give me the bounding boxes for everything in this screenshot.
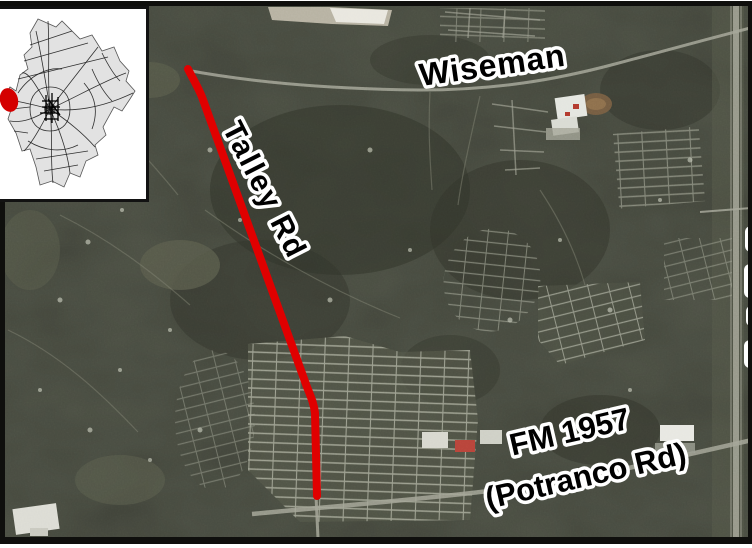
inset-map-svg — [0, 9, 146, 199]
label-talley-rd: Talley Rd — [216, 116, 313, 264]
clipped-label-fragments — [744, 226, 748, 368]
figure-page: Wiseman Talley Rd FM 1957 (Potranco Rd) — [0, 0, 752, 548]
inset-county-map — [0, 6, 149, 202]
label-wiseman: Wiseman — [417, 37, 568, 93]
